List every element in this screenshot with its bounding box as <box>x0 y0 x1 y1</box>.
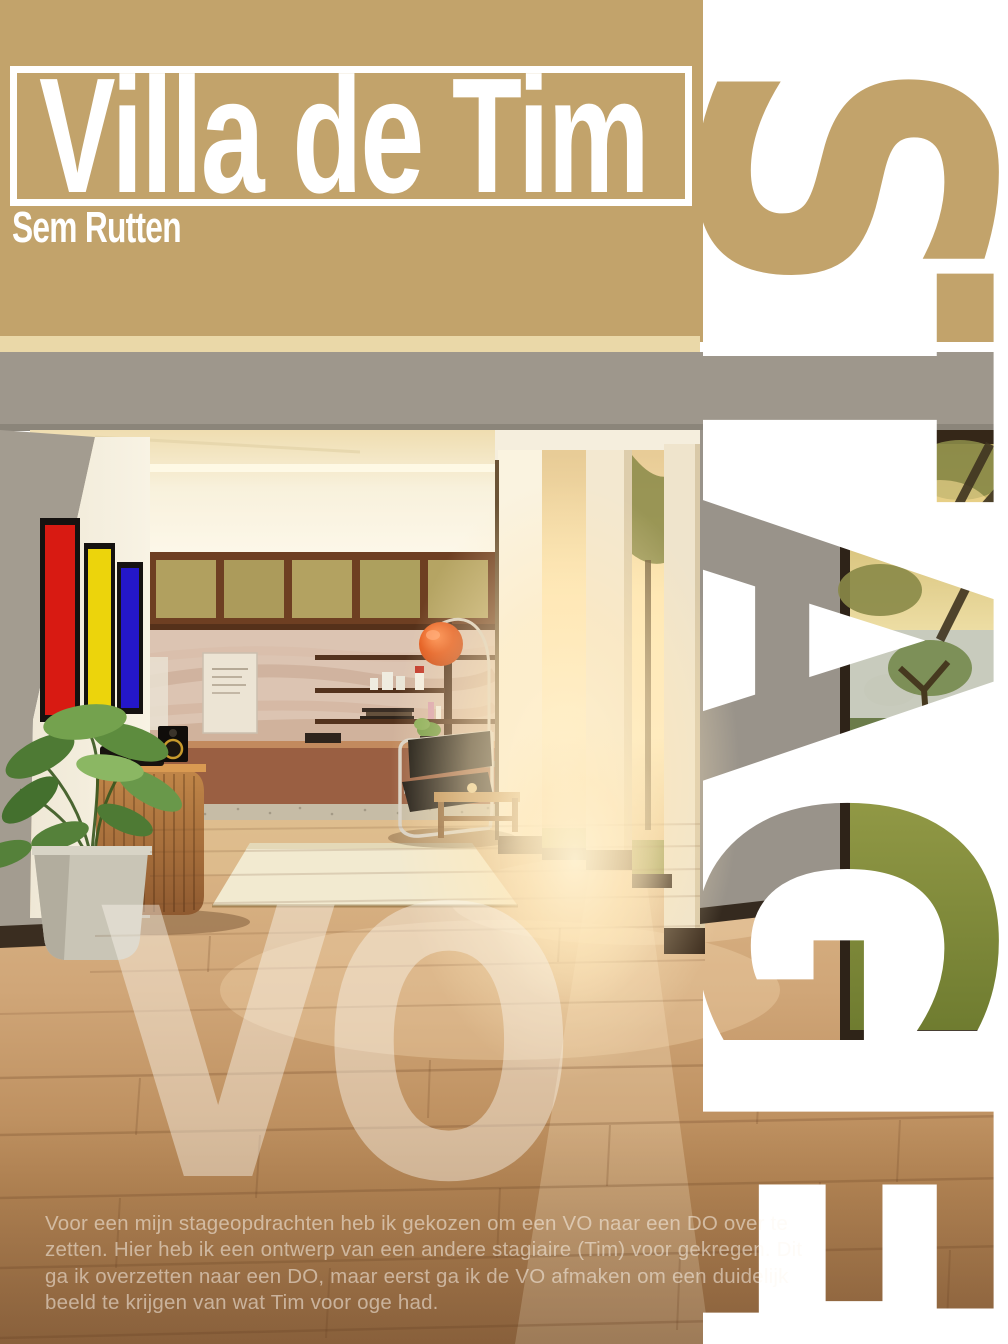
author-name: Sem Rutten <box>12 206 181 250</box>
page-title: Villa de Tim <box>39 61 648 211</box>
paragraph-line: beeld te krijgen van wat Tim voor oge ha… <box>45 1290 705 1316</box>
paragraph-line: ga ik overzetten naar een DO, maar eerst… <box>45 1264 705 1290</box>
paragraph-line: zetten. Hier heb ik een ontwerp van een … <box>45 1237 705 1263</box>
intro-paragraph: Voor een mijn stageopdrachten heb ik gek… <box>45 1211 705 1316</box>
poster-page: VO S T A G E Villa de Tim Sem Rutten Voo… <box>0 0 1008 1344</box>
paragraph-line: Voor een mijn stageopdrachten heb ik gek… <box>45 1211 705 1237</box>
title-box: Villa de Tim <box>10 66 692 206</box>
